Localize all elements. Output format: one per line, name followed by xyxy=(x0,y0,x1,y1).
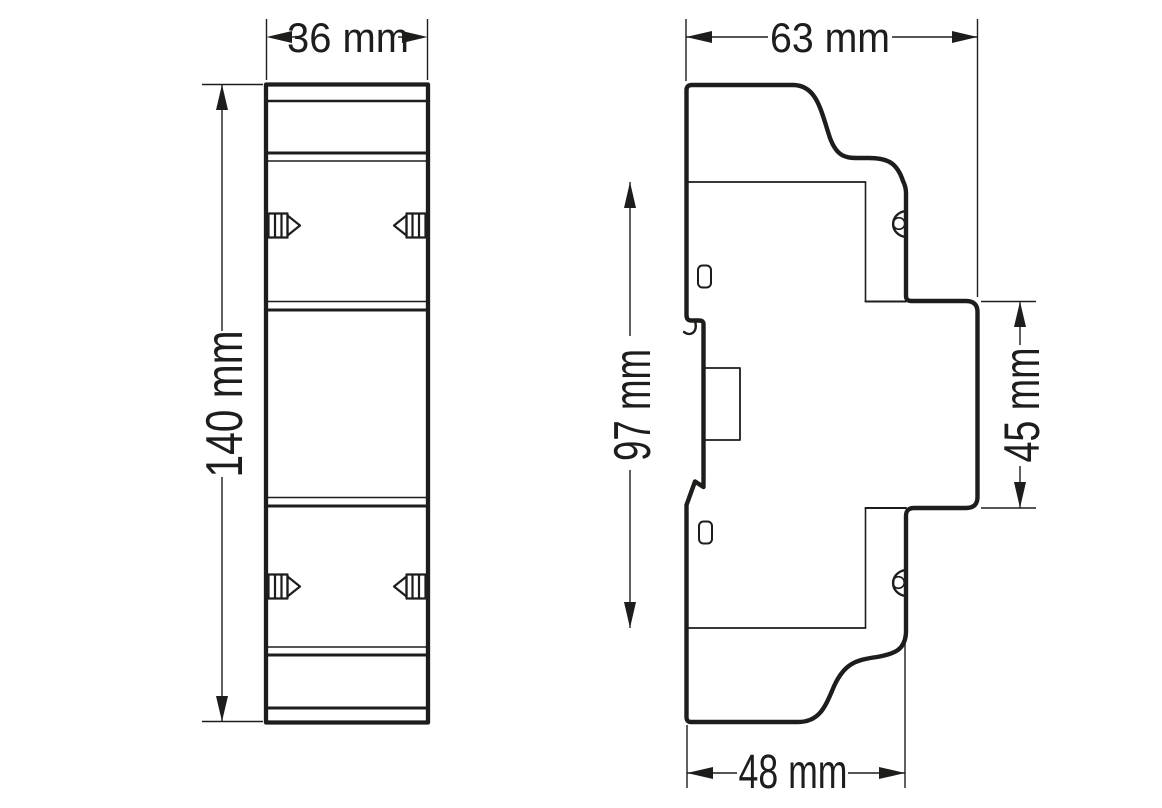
dimension-side-depth-top: 63 mm xyxy=(686,14,978,297)
snap-clip-top-right xyxy=(394,214,426,238)
din-rail-tab xyxy=(704,368,741,440)
front-view xyxy=(266,85,428,723)
dimension-label: 48 mm xyxy=(739,746,848,799)
arrowhead-left-icon xyxy=(686,31,712,43)
front-view-outline xyxy=(266,85,428,723)
arrowhead-down-icon xyxy=(624,602,636,628)
dimension-label: 45 mm xyxy=(994,348,1050,463)
side-view-outline xyxy=(687,85,978,722)
dimension-side-front-height: 45 mm xyxy=(981,302,1050,509)
snap-clip-bottom-right xyxy=(394,575,426,599)
snap-clip-top-left xyxy=(269,214,301,238)
dimension-label: 140 mm xyxy=(196,331,254,478)
arrowhead-right-icon xyxy=(879,767,905,779)
rear-slot-top xyxy=(698,266,711,288)
terminal-screw-bottom xyxy=(893,570,906,596)
technical-drawing-canvas: 36 mm 140 mm xyxy=(0,0,1162,808)
arrowhead-up-icon xyxy=(216,85,228,111)
dimension-label: 63 mm xyxy=(770,14,890,61)
rear-slot-bottom xyxy=(699,522,712,544)
dimension-side-rear-height: 97 mm xyxy=(604,182,662,628)
arrowhead-right-icon xyxy=(952,31,978,43)
dimension-label: 97 mm xyxy=(604,349,662,461)
dimension-front-width: 36 mm xyxy=(267,14,428,80)
dimension-front-height: 140 mm xyxy=(196,85,263,722)
arrowhead-up-icon xyxy=(624,182,636,208)
snap-clip-bottom-left xyxy=(269,575,301,599)
dimension-drawing: 36 mm 140 mm xyxy=(0,0,1162,808)
arrowhead-up-icon xyxy=(1014,302,1026,328)
arrowhead-down-icon xyxy=(1014,482,1026,508)
side-view xyxy=(684,85,978,722)
arrowhead-down-icon xyxy=(216,696,228,722)
front-view-housing-edges xyxy=(268,101,426,708)
arrowhead-left-icon xyxy=(687,767,713,779)
terminal-screw-top xyxy=(893,211,905,237)
din-rail-guide-lip xyxy=(684,321,696,334)
side-view-housing-edges xyxy=(686,182,906,628)
dimension-label: 36 mm xyxy=(287,14,409,61)
